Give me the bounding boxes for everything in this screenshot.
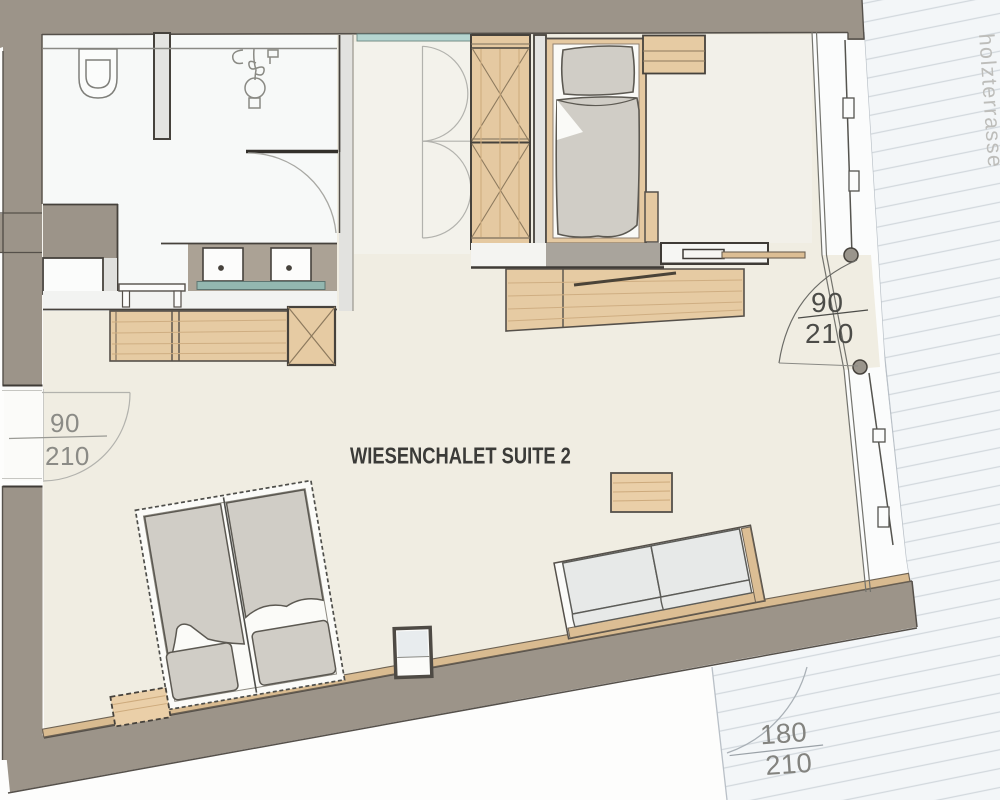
svg-text:90: 90 [50,408,80,438]
svg-text:210: 210 [805,318,854,349]
svg-text:210: 210 [764,747,813,781]
svg-text:180: 180 [759,716,808,750]
svg-text:WIESENCHALET SUITE 2: WIESENCHALET SUITE 2 [350,443,571,469]
svg-text:210: 210 [45,441,90,471]
